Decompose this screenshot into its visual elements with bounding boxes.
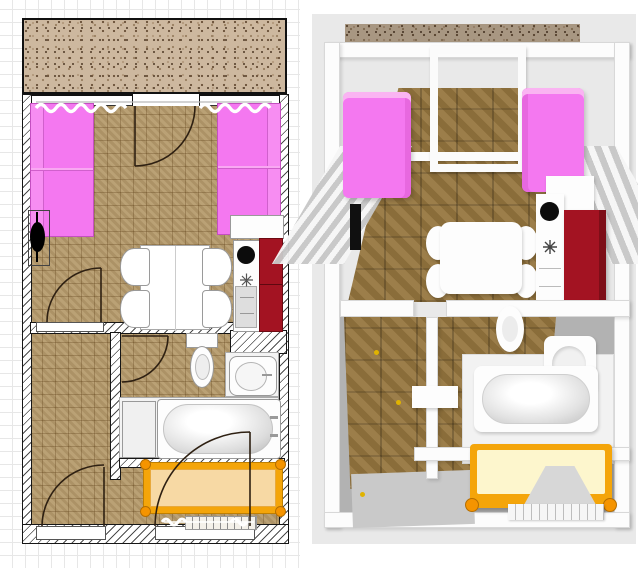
balcony-door-frame-3d[interactable] bbox=[430, 46, 526, 172]
wall3d-mid-right bbox=[446, 300, 630, 317]
entrance-door-swing[interactable] bbox=[42, 465, 104, 526]
bed-knob bbox=[465, 498, 479, 512]
kitchen-counter-3d[interactable] bbox=[536, 194, 564, 304]
sofa-left-3d[interactable] bbox=[343, 92, 411, 198]
viewport-3d[interactable] bbox=[312, 14, 636, 544]
door-handle-dot bbox=[374, 350, 379, 355]
door-handle-dot bbox=[396, 400, 401, 405]
counter-line bbox=[539, 268, 561, 269]
curtain-right-icon bbox=[200, 105, 270, 112]
door-handle-dot bbox=[360, 492, 365, 497]
door-swings[interactable] bbox=[42, 106, 250, 526]
entry-floor-patch-3d bbox=[351, 470, 475, 528]
plan-stroke-overlay bbox=[22, 18, 287, 545]
plan-2d-panel bbox=[0, 0, 300, 568]
balcony-door-swing[interactable] bbox=[135, 106, 195, 166]
floor-plan-2d bbox=[22, 18, 287, 545]
counter-line bbox=[539, 286, 561, 287]
curtain-left-icon bbox=[36, 105, 126, 112]
wall3d-mid-left bbox=[340, 300, 414, 317]
cooktop-icon bbox=[240, 274, 253, 287]
tv-3d[interactable] bbox=[350, 204, 361, 250]
bathtub-basin bbox=[482, 374, 590, 424]
cooktop-3d-icon bbox=[541, 238, 559, 256]
red-cabinet-3d[interactable] bbox=[564, 210, 606, 312]
interior-door-swing[interactable] bbox=[47, 268, 101, 322]
radiator-3d[interactable] bbox=[508, 504, 604, 520]
curtain-symbols bbox=[36, 102, 272, 525]
toilet-3d[interactable] bbox=[496, 306, 524, 352]
dining-table-3d[interactable] bbox=[440, 222, 522, 294]
toilet-bowl-inner bbox=[502, 316, 518, 342]
kitchen-sink-3d bbox=[540, 202, 559, 221]
view-3d-panel[interactable] bbox=[300, 0, 638, 568]
bedroom-door-swing[interactable] bbox=[155, 432, 250, 526]
hall-door-swing[interactable] bbox=[122, 336, 168, 382]
bathtub-3d[interactable] bbox=[474, 366, 598, 432]
wall3d-left bbox=[324, 42, 340, 528]
bed-knob bbox=[603, 498, 617, 512]
bath-cabinet-3d[interactable] bbox=[412, 386, 458, 408]
